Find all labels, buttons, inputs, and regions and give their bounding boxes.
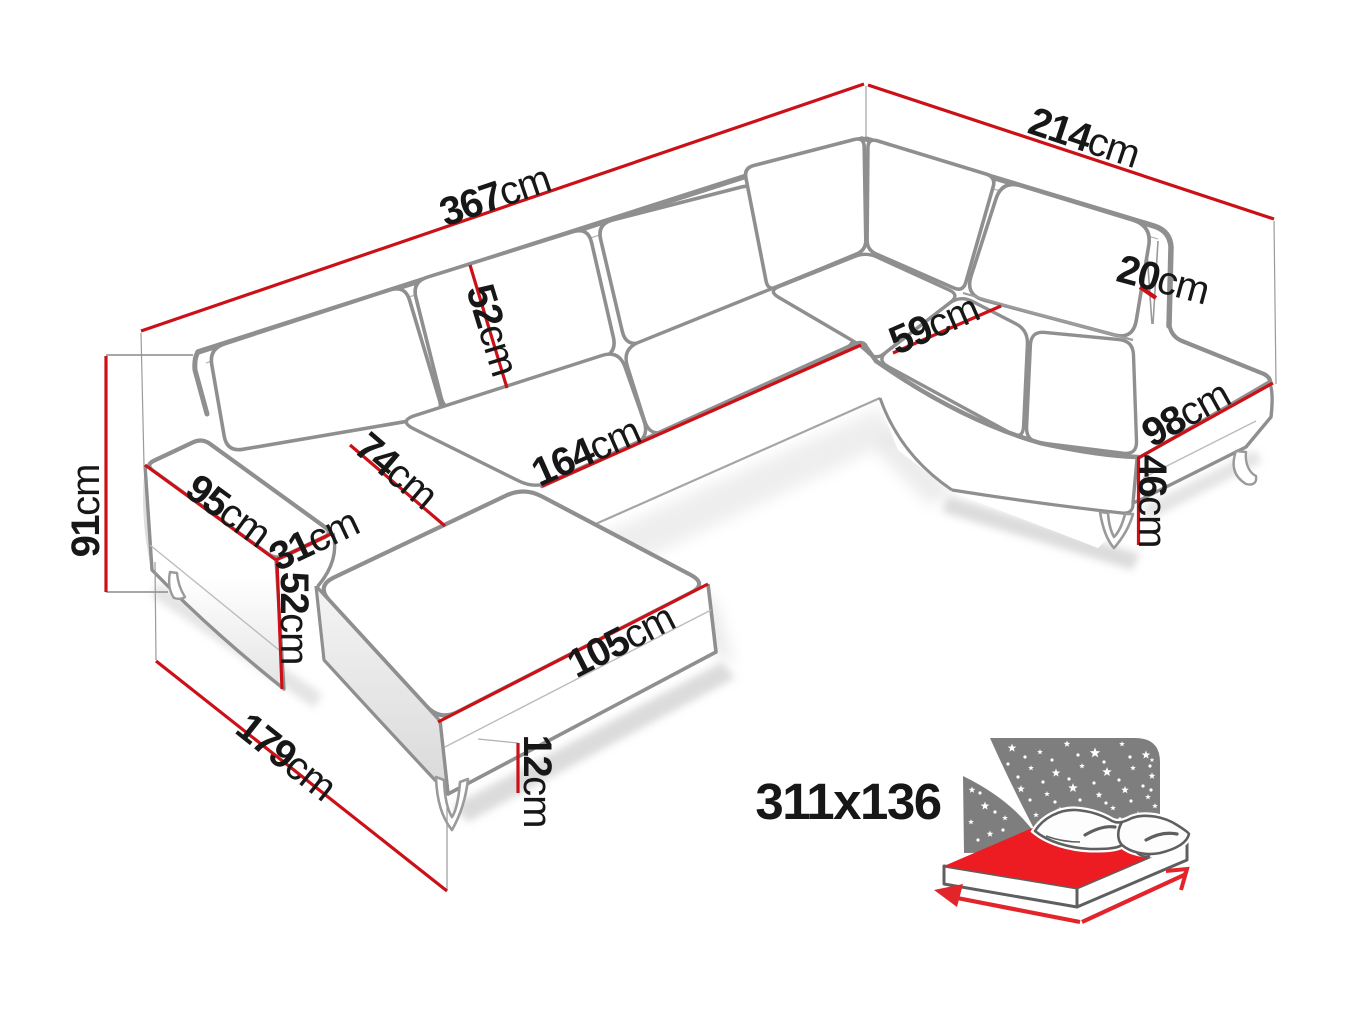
svg-text:46cm: 46cm: [1130, 455, 1174, 548]
svg-text:91cm: 91cm: [64, 465, 108, 558]
svg-text:12cm: 12cm: [515, 735, 559, 828]
svg-text:311x136: 311x136: [755, 773, 940, 830]
svg-text:52cm: 52cm: [272, 572, 316, 665]
